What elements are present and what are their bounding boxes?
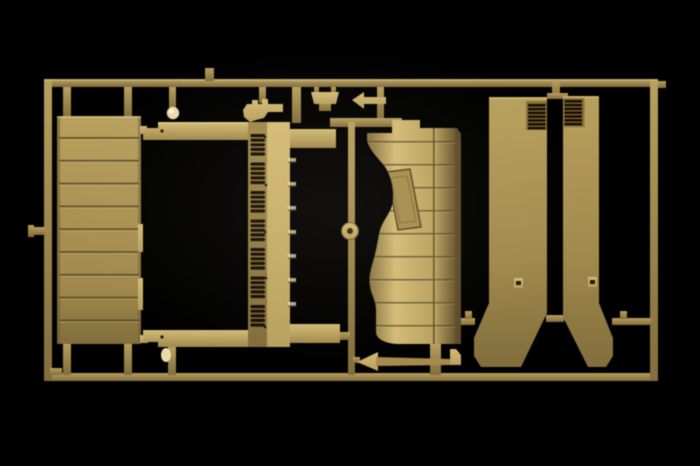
rib-groove-light xyxy=(59,253,139,254)
spine-slot xyxy=(251,134,266,137)
rivet-dot xyxy=(160,129,163,132)
rib-groove xyxy=(59,206,139,208)
bed-top-beam-left xyxy=(143,122,250,140)
spine-tick-shadow xyxy=(288,306,296,307)
curve-rib xyxy=(367,233,460,235)
spine-slot xyxy=(251,143,266,146)
spine-tick xyxy=(288,278,296,282)
spine-slot xyxy=(251,229,266,232)
spine-slot xyxy=(251,220,266,223)
vent-panel-left-top-highlight xyxy=(490,98,547,100)
louvers-left xyxy=(528,104,546,129)
rib-groove xyxy=(59,274,139,276)
spine-tick xyxy=(288,302,296,306)
louvers-right xyxy=(565,100,583,125)
spine-slot xyxy=(251,196,266,199)
rivet-dot xyxy=(264,326,267,329)
spine-slot xyxy=(251,262,266,265)
tab-foot-right xyxy=(620,311,627,319)
spine-slot xyxy=(251,163,266,166)
part-curved-panel xyxy=(367,120,461,344)
curve-rib-light xyxy=(367,327,460,328)
ribbed-panel-top-highlight xyxy=(57,117,141,119)
spine-slot xyxy=(251,139,266,142)
gate-nub-top-right xyxy=(658,81,666,88)
curve-rib xyxy=(367,302,460,304)
spine-slot xyxy=(251,253,266,256)
stub-bottom-panel-a xyxy=(63,343,71,375)
spine-tick xyxy=(288,158,296,162)
gate-knob-bright xyxy=(161,348,171,362)
rib-groove xyxy=(59,137,139,139)
footman-loop-left-hole xyxy=(516,281,521,285)
rib-groove xyxy=(59,228,139,230)
spine-slot xyxy=(251,281,266,284)
spine-slot xyxy=(251,209,266,212)
bed-beam-highlight xyxy=(158,123,250,125)
spine-slot xyxy=(251,191,266,194)
spine-tick xyxy=(288,254,296,258)
spine-tick-shadow xyxy=(288,258,296,259)
gate-stub-top xyxy=(205,68,214,81)
rib-groove-light xyxy=(59,276,139,277)
rib-groove-light xyxy=(59,162,139,163)
louver-slat xyxy=(528,123,546,126)
louver-slat xyxy=(528,119,546,122)
curve-rib-light xyxy=(367,281,460,282)
rib-groove-light xyxy=(59,321,139,322)
spine-slot xyxy=(251,290,266,293)
curved-panel-divider-light xyxy=(435,128,436,344)
rib-groove-light xyxy=(59,299,139,300)
stub-top-panel-a xyxy=(63,87,71,118)
spine-tick xyxy=(288,230,296,234)
rivet-dot xyxy=(265,277,268,280)
gate-tab-bottom-left xyxy=(50,368,62,375)
curve-rib-light xyxy=(367,235,460,236)
clamp-bracket-tab xyxy=(319,104,331,111)
filler-cap-hole xyxy=(347,228,353,234)
louver-slat xyxy=(528,112,546,115)
rib-groove xyxy=(59,183,139,185)
bed-spine-face xyxy=(267,122,290,347)
louver-slat xyxy=(528,115,546,118)
louver-slat xyxy=(565,111,583,114)
ribbed-panel-hinge-tab-a xyxy=(138,224,143,252)
spine-slot xyxy=(251,233,266,236)
spine-slot xyxy=(251,286,266,289)
spine-slot xyxy=(251,224,266,227)
part-filler-cap xyxy=(342,223,359,240)
spine-slot xyxy=(251,176,266,179)
spine-slot xyxy=(251,167,266,170)
ribbed-panel-hinge-tab-b xyxy=(138,278,143,310)
stub-foot-right xyxy=(612,318,651,325)
curved-panel-divider xyxy=(433,128,435,344)
louver-slat xyxy=(565,115,583,118)
louver-slat xyxy=(565,123,583,126)
stub-between-feet xyxy=(546,315,564,322)
spine-slot xyxy=(251,319,266,322)
rail-right xyxy=(650,79,658,381)
rib-groove-light xyxy=(59,207,139,208)
curve-rib xyxy=(367,279,460,281)
spine-tick xyxy=(288,182,296,186)
rib-groove-light xyxy=(59,185,139,186)
spine-slot xyxy=(251,238,266,241)
rib-groove xyxy=(59,251,139,253)
curve-rib xyxy=(367,141,460,143)
louver-slat xyxy=(565,100,583,103)
spine-slot xyxy=(251,314,266,317)
spine-tick-shadow xyxy=(288,282,296,283)
spine-slots xyxy=(251,134,266,327)
rib-groove xyxy=(59,160,139,162)
gate-nub-left-cap xyxy=(28,225,34,237)
footman-loop-right-hole xyxy=(590,280,595,284)
spine-slot xyxy=(251,205,266,208)
spine-tick xyxy=(288,206,296,210)
spine-tick-shadow xyxy=(288,162,296,163)
louver-slat xyxy=(565,108,583,111)
part-round-knob xyxy=(167,107,179,119)
stub-knob xyxy=(169,87,176,109)
rib-groove-light xyxy=(59,230,139,231)
spine-tick-shadow xyxy=(288,234,296,235)
spine-slot xyxy=(251,248,266,251)
spine-slot xyxy=(251,152,266,155)
tab-foot-left xyxy=(465,311,472,319)
runner-horizontal-mid xyxy=(330,118,402,127)
model-kit-sprue-photo xyxy=(0,0,700,466)
rivet-dot xyxy=(265,184,268,187)
stub-bottom-panel-b xyxy=(124,343,132,375)
spine-slot xyxy=(251,257,266,260)
spine-slot xyxy=(251,310,266,313)
bed-bottom-beam-left xyxy=(143,330,250,347)
spine-slot xyxy=(251,200,266,203)
louver-slat xyxy=(528,127,546,130)
clamp-bracket-body xyxy=(311,92,339,104)
vent-panel-right-top-highlight xyxy=(564,97,599,99)
rib-groove xyxy=(59,320,139,322)
rivet-dot xyxy=(160,335,163,338)
louver-slat xyxy=(565,119,583,122)
curve-rib-light xyxy=(367,304,460,305)
rivet-dot xyxy=(264,231,267,234)
spine-tick-shadow xyxy=(288,210,296,211)
spine-slot xyxy=(251,172,266,175)
curve-rib xyxy=(367,325,460,327)
part-ribbed-panel xyxy=(57,116,148,344)
louver-slat xyxy=(528,104,546,107)
stub-bed-frame xyxy=(292,87,301,123)
spine-slot xyxy=(251,305,266,308)
curved-panel-face xyxy=(367,120,461,344)
rivet-dot xyxy=(264,136,267,139)
spine-slot xyxy=(251,277,266,280)
spine-slot xyxy=(251,266,266,269)
photo-stage xyxy=(0,0,700,466)
round-knob-highlight xyxy=(169,109,173,113)
louver-slat xyxy=(528,108,546,111)
curve-rib-light xyxy=(367,258,460,259)
rib-groove xyxy=(59,297,139,299)
rail-top-highlight xyxy=(44,80,658,81)
spine-tick-shadow xyxy=(288,186,296,187)
spine-slot xyxy=(251,323,266,326)
rail-left xyxy=(44,79,52,381)
louver-slat xyxy=(565,104,583,107)
spine-slot xyxy=(251,148,266,151)
curve-rib-light xyxy=(367,143,460,144)
curve-rib xyxy=(367,256,460,258)
rib-groove-light xyxy=(59,139,139,140)
spine-slot xyxy=(251,181,266,184)
stub-top-panel-b xyxy=(124,87,132,118)
spine-slot xyxy=(251,295,266,298)
stub-foot-left xyxy=(461,318,475,325)
curved-panel-edge-shade xyxy=(455,128,461,344)
